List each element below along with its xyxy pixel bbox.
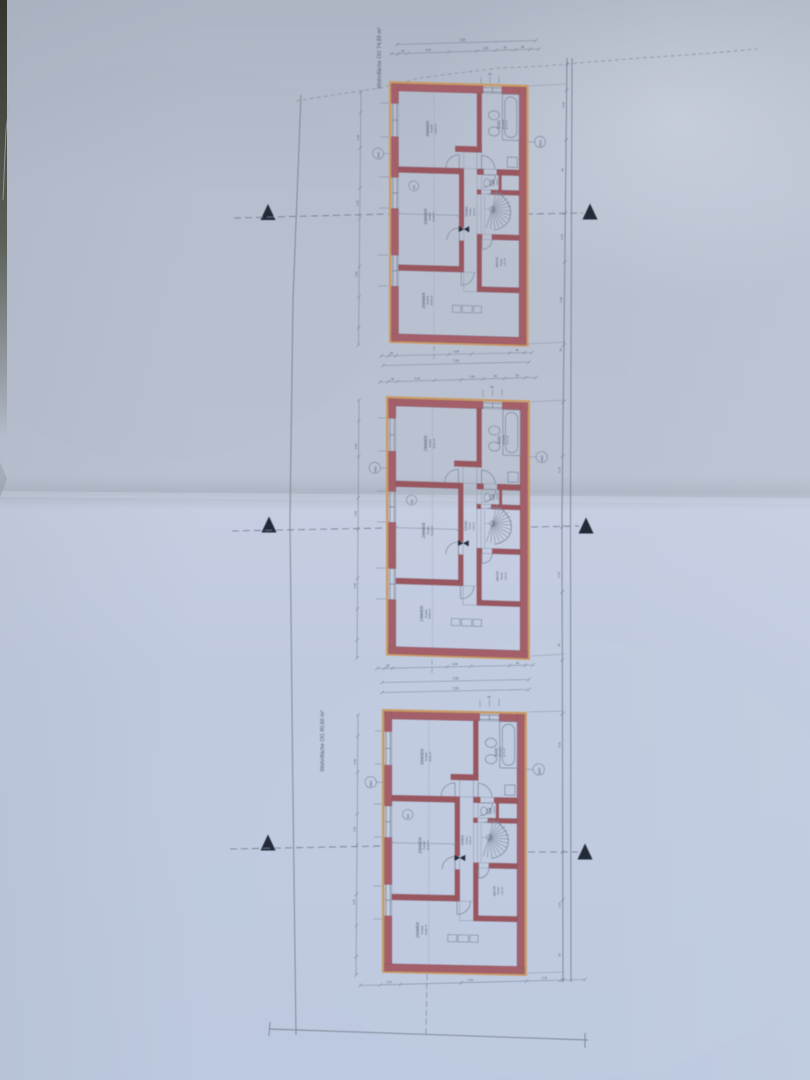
svg-text:ABSTR.: ABSTR. <box>492 885 496 896</box>
svg-text:ZIMMER: ZIMMER <box>423 208 428 224</box>
svg-text:6,36: 6,36 <box>454 350 460 354</box>
svg-text:Parkett: Parkett <box>424 609 428 618</box>
svg-text:AW2: AW2 <box>540 455 544 462</box>
svg-text:2,76: 2,76 <box>557 572 561 578</box>
svg-text:6,92 m²: 6,92 m² <box>469 836 472 844</box>
svg-text:8,71 m²: 8,71 m² <box>502 748 506 757</box>
svg-text:WC: WC <box>491 180 495 185</box>
svg-text:4,87 m²: 4,87 m² <box>501 887 504 895</box>
svg-text:BAD: BAD <box>496 120 501 129</box>
svg-text:36: 36 <box>561 168 565 172</box>
svg-text:ZIMMER: ZIMMER <box>425 120 430 136</box>
svg-text:GANG: GANG <box>460 835 464 846</box>
svg-text:4,87 m²: 4,87 m² <box>504 258 507 266</box>
svg-text:AW1: AW1 <box>373 466 377 473</box>
svg-text:2,26: 2,26 <box>483 46 489 50</box>
svg-text:Parkett: Parkett <box>428 439 432 448</box>
svg-text:Keramik: Keramik <box>501 119 505 129</box>
svg-text:ABSTR.: ABSTR. <box>495 570 499 581</box>
svg-text:Parkett: Parkett <box>428 212 432 221</box>
svg-text:5,36: 5,36 <box>452 662 458 666</box>
svg-text:7,20: 7,20 <box>453 359 459 363</box>
svg-text:BAD: BAD <box>493 748 498 757</box>
svg-text:4,19: 4,19 <box>415 376 421 380</box>
svg-text:W1: W1 <box>410 499 414 504</box>
svg-text:7,20: 7,20 <box>452 686 458 690</box>
svg-text:26: 26 <box>516 661 520 665</box>
svg-text:90: 90 <box>516 373 520 377</box>
svg-text:W1: W1 <box>406 813 410 818</box>
svg-text:90: 90 <box>521 45 525 49</box>
svg-text:16,06 m²: 16,06 m² <box>428 752 432 763</box>
svg-text:10,82 m²: 10,82 m² <box>430 525 434 536</box>
svg-text:Wohnfläche OG 74,89 m²: Wohnfläche OG 74,89 m² <box>377 27 383 88</box>
svg-text:7,20: 7,20 <box>459 38 465 42</box>
svg-text:AW2: AW2 <box>537 767 541 774</box>
svg-text:Parkett: Parkett <box>426 526 430 535</box>
svg-text:4,19: 4,19 <box>425 48 431 52</box>
svg-text:Parkett: Parkett <box>465 836 468 844</box>
svg-text:1,00: 1,00 <box>353 826 357 832</box>
svg-text:1,58 m²: 1,58 m² <box>493 806 496 814</box>
svg-text:1,58 m²: 1,58 m² <box>496 178 499 186</box>
svg-text:8,71 m²: 8,71 m² <box>505 435 509 444</box>
svg-text:Parkett: Parkett <box>426 296 430 305</box>
svg-text:4,19: 4,19 <box>353 759 357 765</box>
svg-text:Parkett: Parkett <box>469 522 472 530</box>
svg-text:ZIMMER: ZIMMER <box>415 922 420 938</box>
svg-text:2,76: 2,76 <box>560 234 564 240</box>
svg-text:1,00: 1,00 <box>559 297 563 303</box>
svg-text:AW2: AW2 <box>538 140 542 147</box>
svg-text:3,44: 3,44 <box>352 899 356 905</box>
svg-text:1,00: 1,00 <box>355 200 359 206</box>
svg-text:36: 36 <box>503 46 507 50</box>
svg-text:6,92 m²: 6,92 m² <box>473 522 476 530</box>
svg-text:1,58 m²: 1,58 m² <box>496 493 499 501</box>
svg-text:Parkett: Parkett <box>500 258 503 266</box>
svg-text:ZIMMER: ZIMMER <box>423 435 428 451</box>
svg-text:WC: WC <box>488 808 492 813</box>
svg-text:Parkett: Parkett <box>469 207 472 215</box>
svg-text:19,86 m²: 19,86 m² <box>428 608 432 619</box>
svg-text:ZIMMER: ZIMMER <box>421 292 426 308</box>
svg-text:AW1: AW1 <box>377 151 381 158</box>
svg-text:6,92 m²: 6,92 m² <box>473 207 476 215</box>
svg-text:4,87 m²: 4,87 m² <box>504 572 507 580</box>
svg-text:10,82 m²: 10,82 m² <box>431 211 435 222</box>
svg-text:19,86 m²: 19,86 m² <box>429 295 433 306</box>
svg-text:ZIMMER: ZIMMER <box>421 522 426 538</box>
svg-text:4,19: 4,19 <box>354 443 358 449</box>
svg-text:36: 36 <box>559 348 563 352</box>
svg-text:GANG: GANG <box>464 520 468 530</box>
svg-text:Parkett: Parkett <box>420 925 424 934</box>
svg-text:5,36: 5,36 <box>557 467 561 473</box>
svg-text:Parkett: Parkett <box>424 752 428 761</box>
svg-text:Parkett: Parkett <box>500 572 503 580</box>
svg-text:BAD: BAD <box>497 435 502 443</box>
svg-text:8,71 m²: 8,71 m² <box>505 120 509 129</box>
svg-text:19,86 m²: 19,86 m² <box>424 925 428 936</box>
svg-text:90: 90 <box>487 695 491 699</box>
svg-text:Keramik: Keramik <box>498 747 502 757</box>
svg-text:36: 36 <box>391 377 395 381</box>
svg-text:2,31: 2,31 <box>386 980 392 984</box>
svg-text:16,06 m²: 16,06 m² <box>433 123 437 134</box>
svg-text:4,19: 4,19 <box>356 134 360 140</box>
svg-text:ZIMMER: ZIMMER <box>417 837 422 853</box>
svg-text:35: 35 <box>401 49 405 53</box>
svg-text:7,20: 7,20 <box>467 978 473 982</box>
svg-text:1,00: 1,00 <box>354 510 358 516</box>
svg-text:2,31: 2,31 <box>558 902 562 908</box>
svg-text:ZIMMER: ZIMMER <box>419 606 424 622</box>
svg-text:Wohnfläche OG 80,60 m²: Wohnfläche OG 80,60 m² <box>320 710 326 771</box>
svg-text:AW1: AW1 <box>369 780 373 787</box>
svg-text:Parkett: Parkett <box>497 887 500 895</box>
svg-text:Parkett: Parkett <box>422 841 426 850</box>
svg-text:3,95: 3,95 <box>353 583 357 589</box>
svg-text:36: 36 <box>515 348 519 352</box>
svg-text:ZIMMER: ZIMMER <box>419 749 424 765</box>
svg-text:90: 90 <box>490 385 494 389</box>
svg-text:ABSTR.: ABSTR. <box>495 256 499 267</box>
svg-text:7,20: 7,20 <box>452 676 458 680</box>
svg-text:36: 36 <box>494 374 498 378</box>
svg-text:36: 36 <box>390 351 394 355</box>
svg-text:W1: W1 <box>412 185 416 190</box>
svg-text:36: 36 <box>558 953 562 957</box>
svg-text:2,26: 2,26 <box>469 375 475 379</box>
svg-text:Parkett: Parkett <box>430 124 434 133</box>
svg-text:4,19: 4,19 <box>561 102 565 108</box>
svg-text:WC: WC <box>491 494 495 499</box>
svg-text:4,19: 4,19 <box>557 742 561 748</box>
svg-text:36: 36 <box>557 643 561 647</box>
svg-text:36: 36 <box>386 664 390 668</box>
svg-text:3,95: 3,95 <box>355 271 359 277</box>
svg-text:10,82 m²: 10,82 m² <box>426 840 430 851</box>
svg-text:2,76: 2,76 <box>542 976 548 980</box>
svg-text:90: 90 <box>488 72 492 76</box>
svg-text:GANG: GANG <box>464 206 468 217</box>
svg-text:16,06 m²: 16,06 m² <box>432 438 436 449</box>
svg-text:Keramik: Keramik <box>501 434 505 444</box>
